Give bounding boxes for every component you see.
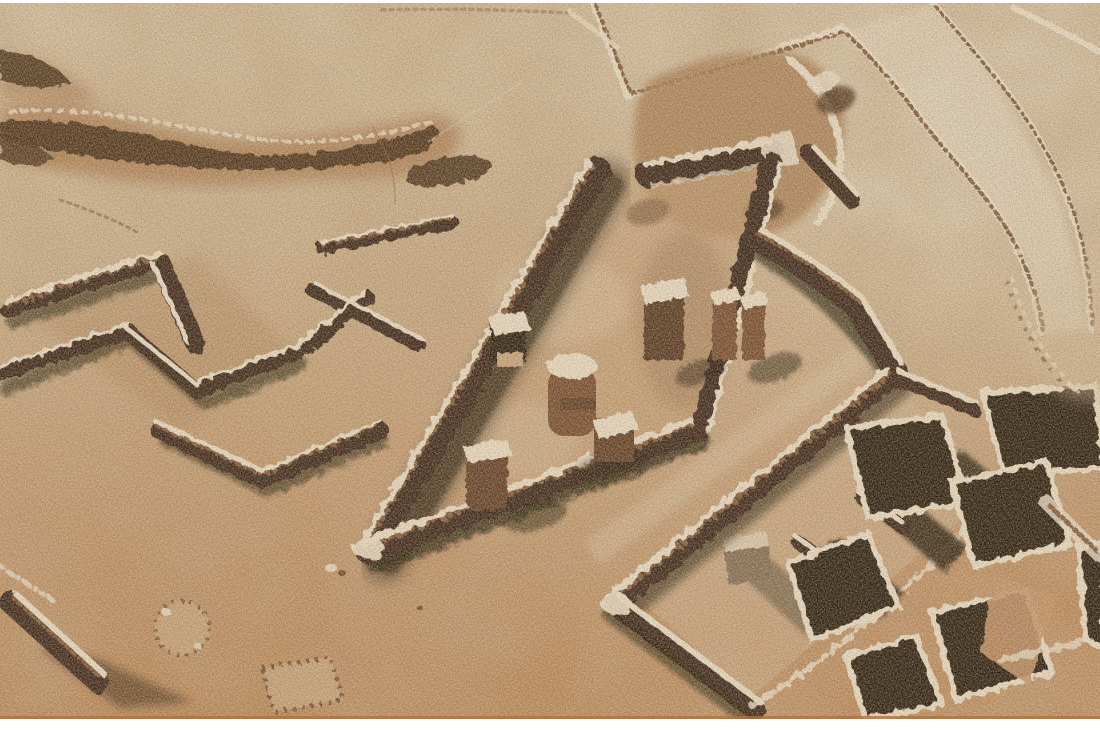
pebble-speckle: [0, 330, 1100, 719]
photo-edge-fringe: [0, 716, 1100, 719]
photo-content: rubble field-wall lines and pale track e…: [0, 2, 1100, 720]
frame-bottom: [0, 719, 1100, 735]
photo-page: rubble field-wall lines and pale track e…: [0, 0, 1100, 735]
excavation-aerial-photo: rubble field-wall lines and pale track e…: [0, 0, 1100, 735]
frame-top: [0, 0, 1100, 3]
